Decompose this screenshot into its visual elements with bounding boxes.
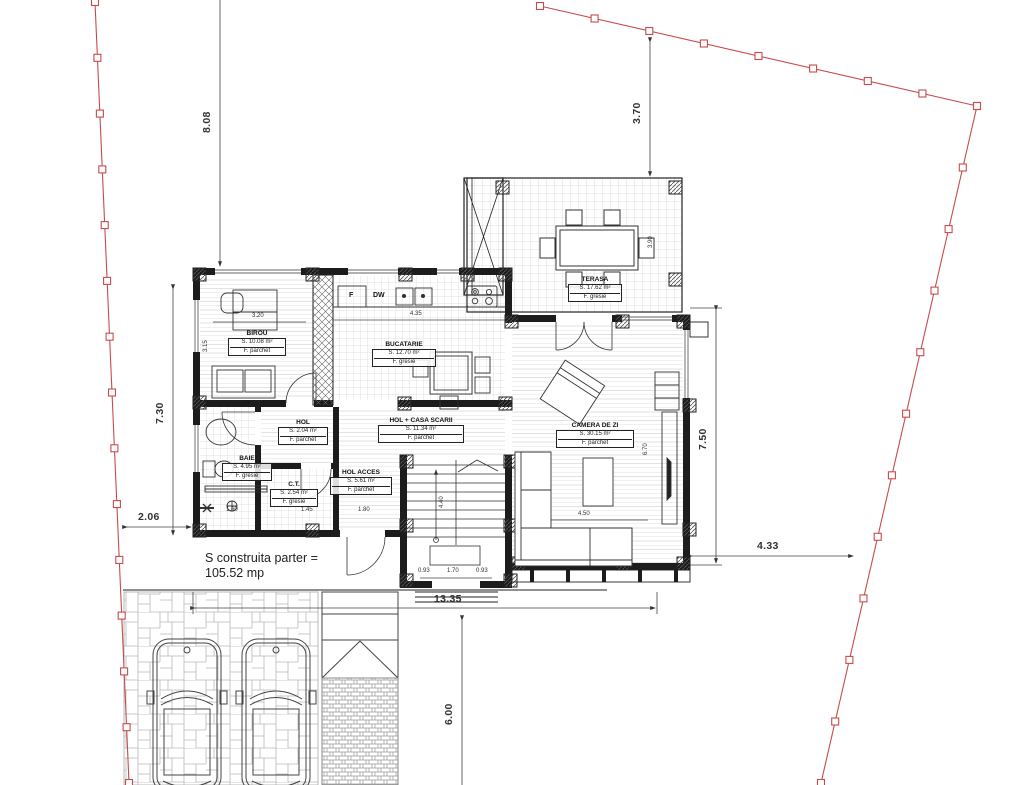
dim-setback-left: 2.06 (138, 511, 160, 523)
dishwasher-label: DW (373, 292, 385, 299)
dim-house-left: 7.30 (154, 402, 166, 424)
desk-icon (221, 290, 277, 330)
room-label-baie: BAIE S. 4.95 m²F. gresie (222, 455, 272, 481)
dim-bay-a: 0.93 (418, 568, 430, 574)
dim-living-depth: 6.70 (643, 443, 649, 455)
dim-drive-depth: 6.00 (443, 703, 455, 725)
room-label-hol: HOL S. 2.04 m²F. parchet (278, 419, 328, 445)
staircase (407, 460, 505, 565)
dim-ct-width: 1.45 (301, 507, 313, 513)
walkway (322, 592, 398, 785)
room-label-casa-scarii: HOL + CASA SCARII S. 11.34 m²F. parchet (378, 417, 464, 443)
dim-house-right: 7.50 (697, 428, 709, 450)
stove-icon (467, 286, 497, 307)
room-label-terasa: TERASA S. 17.62 m²F. gresie (568, 276, 622, 302)
armchair-icon (540, 360, 604, 424)
plan-linework (0, 0, 1024, 785)
room-label-camera-de-zi: CAMERA DE ZI S. 30.15 m²F. parchet (556, 422, 634, 448)
sink-icon (396, 288, 432, 305)
tv-unit-icon (655, 372, 679, 524)
dim-house-width: 13.35 (434, 593, 462, 605)
dim-birou-width: 3.20 (252, 313, 264, 319)
floor-plan-canvas: 8.08 3.70 7.30 2.06 7.50 4.33 13.35 6.00… (0, 0, 1024, 785)
dim-stair-run: 4.40 (439, 496, 445, 508)
dim-bay-c: 0.93 (476, 568, 488, 574)
dim-terasa-depth: 3.90 (648, 236, 654, 248)
dim-setback-right: 4.33 (757, 540, 779, 552)
dim-plot-left: 8.08 (201, 111, 213, 133)
washbasin-icon (206, 419, 236, 445)
fridge-label: F (349, 292, 353, 299)
dim-birou-depth: 3.15 (203, 340, 209, 352)
sofa-birou-icon (212, 366, 275, 398)
dim-holacces-width: 1.80 (358, 507, 370, 513)
dim-living-width: 4.50 (578, 511, 590, 517)
dim-baie-width: 1.60 (226, 507, 238, 513)
room-label-hol-acces: HOL ACCES S. 5.61 m²F. parchet (330, 469, 392, 495)
sofa-icon (515, 452, 632, 566)
dim-plot-top-right: 3.70 (631, 102, 643, 124)
room-label-birou: BIROU S. 10.08 m²F. parchet (228, 330, 286, 356)
room-label-ct: C.T. S. 2.54 m²F. gresie (270, 481, 318, 507)
coffee-table-icon (583, 458, 613, 506)
dim-kitchen-width: 4.35 (410, 311, 422, 317)
dim-bay-b: 1.70 (447, 568, 459, 574)
kitchen-counter (333, 286, 505, 307)
room-label-bucatarie: BUCATARIE S. 12.70 m²F. gresie (372, 341, 436, 367)
built-area-note: S construita parter = 105.52 mp (205, 551, 318, 581)
